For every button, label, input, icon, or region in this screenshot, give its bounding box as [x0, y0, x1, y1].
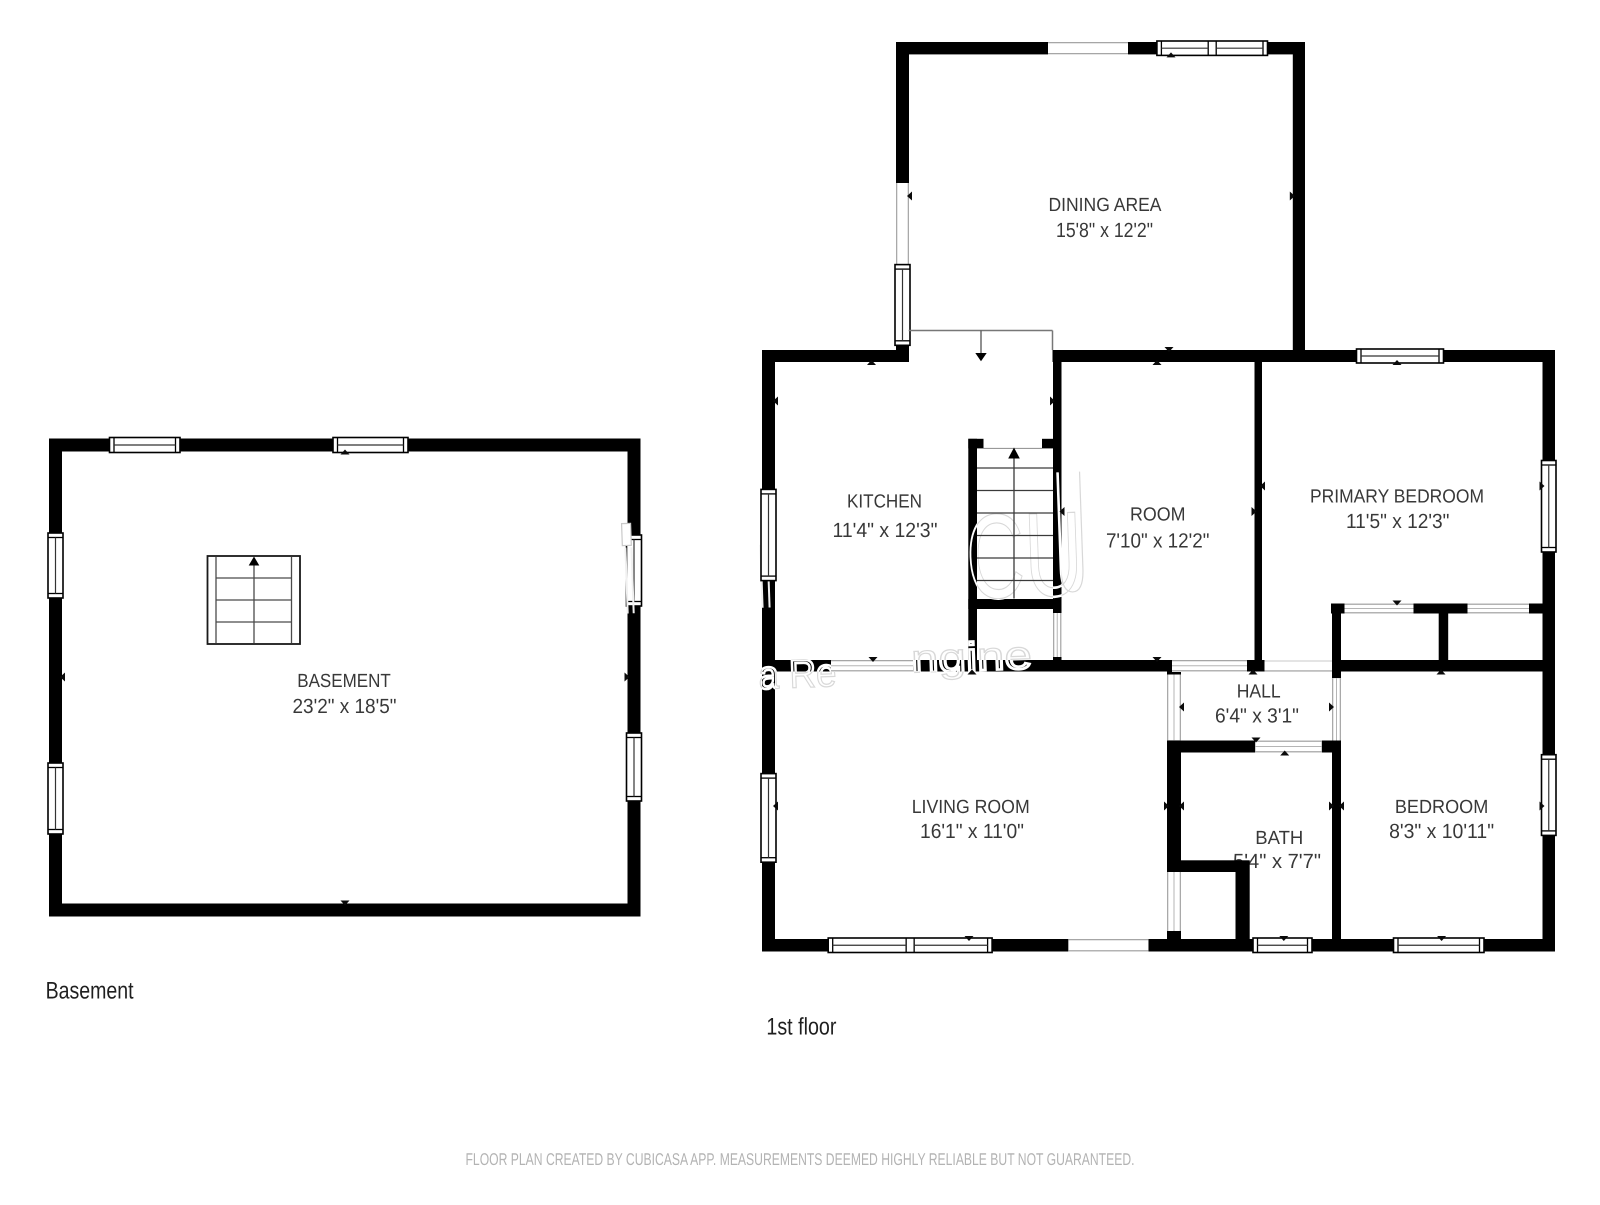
svg-text:BASEMENT: BASEMENT	[297, 671, 391, 692]
svg-text:ROOM: ROOM	[1130, 505, 1186, 526]
svg-text:11'5" x 12'3": 11'5" x 12'3"	[1346, 510, 1450, 533]
svg-text:23'2" x 18'5": 23'2" x 18'5"	[293, 695, 397, 718]
svg-text:16'1" x 11'0": 16'1" x 11'0"	[920, 820, 1024, 843]
svg-text:FLOOR PLAN CREATED BY CUBICASA: FLOOR PLAN CREATED BY CUBICASA APP. MEAS…	[466, 1150, 1135, 1169]
svg-text:11'4" x 12'3": 11'4" x 12'3"	[833, 519, 938, 542]
svg-text:Basement: Basement	[46, 978, 134, 1005]
svg-text:HALL: HALL	[1237, 682, 1281, 703]
svg-text:6'4" x 3'1": 6'4" x 3'1"	[1215, 705, 1299, 728]
svg-text:1st floor: 1st floor	[766, 1014, 836, 1041]
svg-text:PRIMARY BEDROOM: PRIMARY BEDROOM	[1310, 487, 1484, 508]
svg-text:BEDROOM: BEDROOM	[1395, 797, 1489, 818]
svg-text:KITCHEN: KITCHEN	[847, 492, 922, 513]
svg-text:15'8" x 12'2": 15'8" x 12'2"	[1056, 219, 1153, 242]
svg-text:DINING AREA: DINING AREA	[1049, 195, 1162, 216]
svg-text:7'10" x 12'2": 7'10" x 12'2"	[1106, 530, 1210, 553]
svg-text:LIVING ROOM: LIVING ROOM	[912, 797, 1030, 818]
svg-text:8'3" x 10'11": 8'3" x 10'11"	[1389, 820, 1494, 843]
svg-text:BATH: BATH	[1255, 828, 1303, 849]
